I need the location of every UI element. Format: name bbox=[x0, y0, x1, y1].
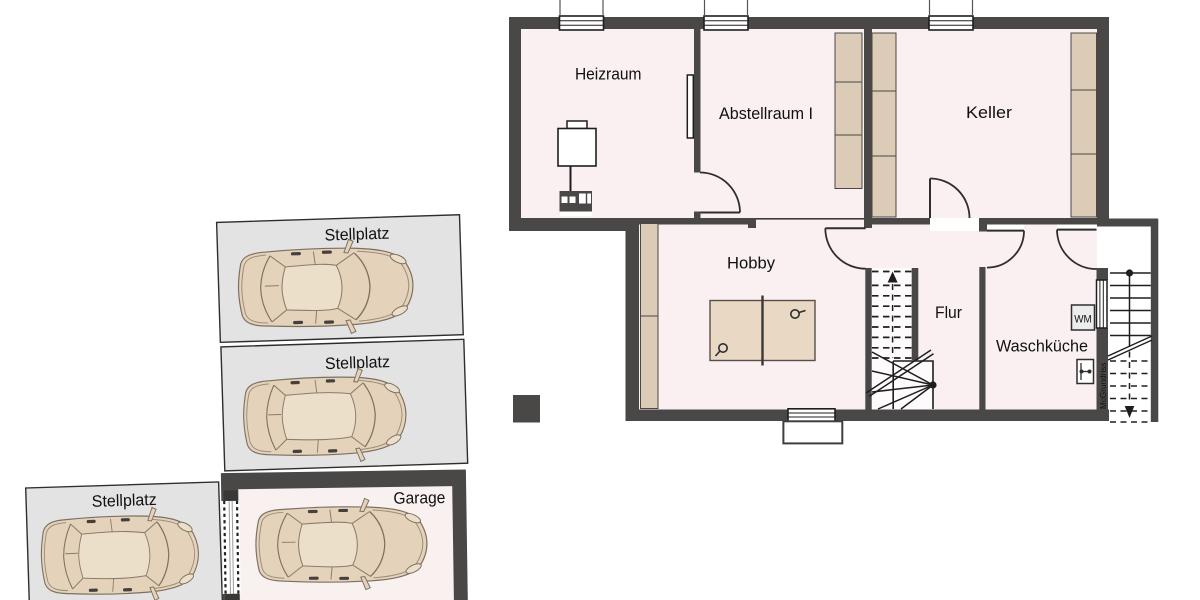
svg-text:Keller: Keller bbox=[966, 104, 1013, 122]
svg-text:Heizraum: Heizraum bbox=[575, 66, 642, 84]
svg-text:Flur: Flur bbox=[935, 304, 962, 322]
svg-text:Stellplatz: Stellplatz bbox=[91, 491, 157, 511]
svg-text:Waschküche: Waschküche bbox=[996, 338, 1088, 356]
svg-text:WM: WM bbox=[1074, 314, 1092, 326]
svg-text:Stellplatz: Stellplatz bbox=[324, 225, 390, 245]
svg-text:Hobby: Hobby bbox=[727, 255, 776, 273]
svg-text:Abstellraum I: Abstellraum I bbox=[719, 105, 813, 123]
svg-text:McGrundriss: McGrundriss bbox=[1098, 363, 1108, 410]
svg-text:Garage: Garage bbox=[393, 489, 445, 508]
